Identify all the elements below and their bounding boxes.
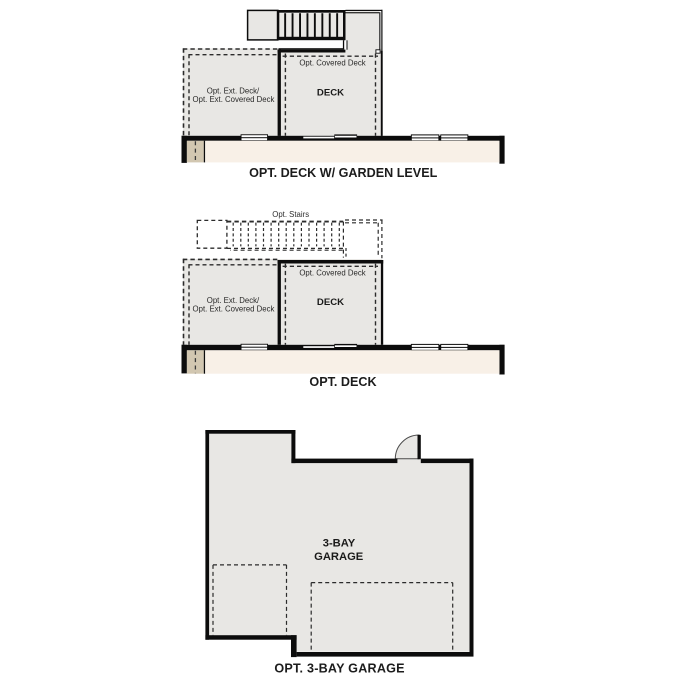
svg-text:OPT. DECK: OPT. DECK [309, 375, 376, 389]
svg-text:Opt. Covered Deck: Opt. Covered Deck [299, 59, 365, 68]
svg-text:3-BAY: 3-BAY [323, 537, 356, 549]
svg-text:DECK: DECK [317, 87, 344, 98]
svg-text:GARAGE: GARAGE [314, 551, 364, 563]
svg-text:Opt. Covered Deck: Opt. Covered Deck [299, 268, 365, 277]
svg-text:OPT. DECK W/ GARDEN LEVEL: OPT. DECK W/ GARDEN LEVEL [249, 166, 438, 180]
svg-text:Opt. Ext. Covered Deck: Opt. Ext. Covered Deck [193, 305, 275, 314]
svg-text:DECK: DECK [317, 297, 344, 308]
svg-text:Opt. Stairs: Opt. Stairs [272, 210, 309, 219]
svg-text:Opt. Ext. Covered Deck: Opt. Ext. Covered Deck [193, 95, 275, 104]
svg-text:OPT. 3-BAY GARAGE: OPT. 3-BAY GARAGE [274, 662, 404, 676]
